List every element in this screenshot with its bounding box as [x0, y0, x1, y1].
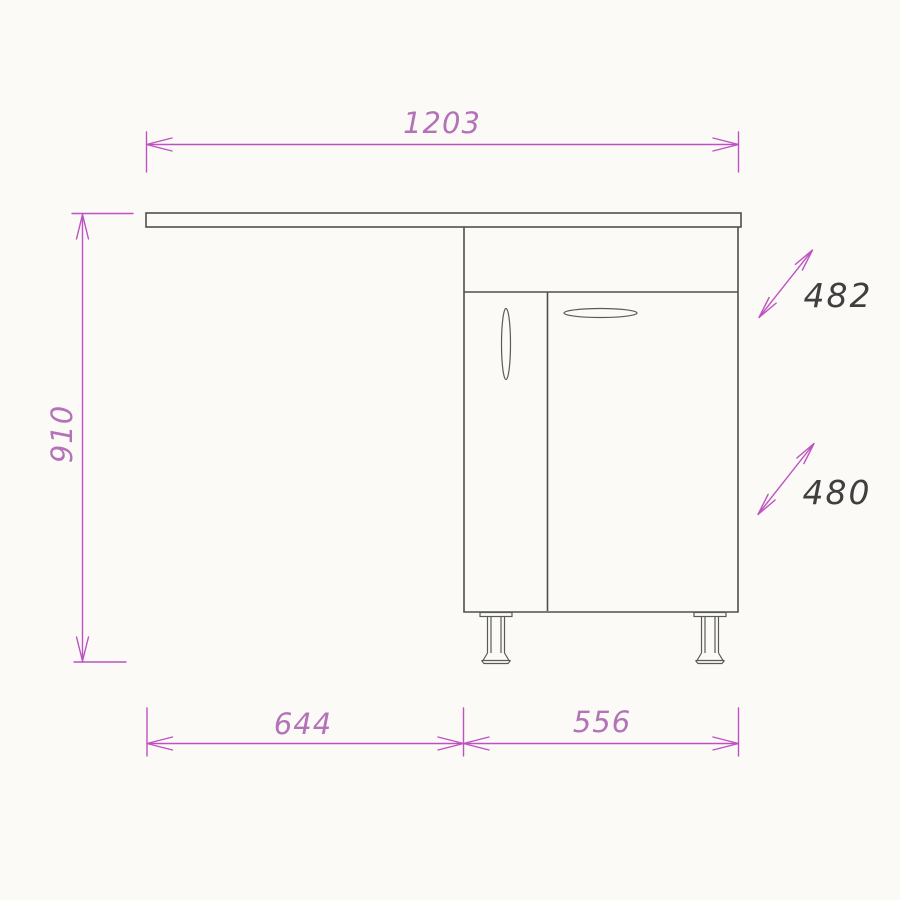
dim-label-top-width: 1203 [403, 106, 481, 140]
dim-label-right-lower: 480 [803, 473, 872, 512]
dim-label-left-height: 910 [45, 405, 79, 463]
technical-drawing-canvas: 1203 910 482 480 644 556 [0, 0, 900, 900]
left-leg-plate [480, 613, 512, 617]
countertop [146, 213, 741, 227]
dim-label-bottom-left: 644 [274, 707, 332, 741]
furniture-dimension-drawing: 1203 910 482 480 644 556 [0, 0, 900, 900]
left-door-handle [502, 309, 511, 380]
left-leg-foot [482, 653, 511, 664]
right-leg-shaft [702, 617, 719, 654]
dimension-left-height [72, 214, 133, 663]
right-leg-plate [694, 613, 726, 617]
dimension-bottom-widths [147, 708, 739, 756]
dim-label-bottom-right: 556 [573, 705, 631, 739]
cabinet-body-outline [464, 227, 738, 612]
furniture-outline [146, 213, 741, 664]
right-leg [694, 613, 726, 664]
left-leg-shaft [488, 617, 505, 654]
left-leg [480, 613, 512, 664]
dim-label-right-upper: 482 [804, 276, 873, 315]
right-door-handle [564, 309, 637, 318]
dimension-labels: 1203 910 482 480 644 556 [45, 106, 873, 741]
right-leg-foot [696, 653, 725, 664]
dimension-graphics [72, 132, 814, 756]
